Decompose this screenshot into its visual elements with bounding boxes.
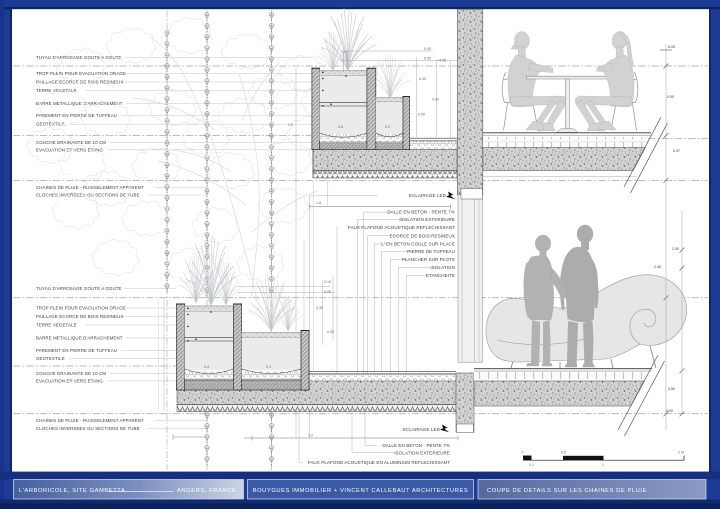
svg-text:0.6: 0.6: [338, 125, 343, 129]
svg-text:0.05: 0.05: [424, 47, 431, 51]
svg-text:0.45: 0.45: [327, 330, 334, 334]
svg-text:3.2: 3.2: [308, 434, 313, 438]
svg-text:ISOLATION: ISOLATION: [430, 265, 455, 270]
svg-text:ETANCHEITE: ETANCHEITE: [426, 273, 455, 278]
svg-text:0: 0: [522, 451, 524, 455]
svg-text:L'ARBORICOLE, SITE GAMBETTA: L'ARBORICOLE, SITE GAMBETTA: [19, 488, 125, 494]
svg-text:0.60: 0.60: [432, 98, 439, 102]
svg-text:GEOTEXTILE: GEOTEXTILE: [36, 356, 65, 361]
svg-text:6.30: 6.30: [419, 77, 426, 81]
svg-text:2.50: 2.50: [672, 247, 679, 251]
svg-text:0.50: 0.50: [418, 113, 425, 117]
svg-text:TUYAU D'ARROSAGE GOUTE A GOUTE: TUYAU D'ARROSAGE GOUTE A GOUTE: [36, 286, 122, 291]
svg-text:1.2: 1.2: [288, 123, 293, 127]
svg-text:TUYAU D'ARROSAGE GOUTE A GOUTE: TUYAU D'ARROSAGE GOUTE A GOUTE: [36, 55, 122, 60]
svg-text:ECLAIRAGE LED: ECLAIRAGE LED: [409, 193, 447, 198]
svg-text:PAILLAGE ECORCE DE BOIS RESINE: PAILLAGE ECORCE DE BOIS RESINEUX: [36, 314, 123, 319]
svg-text:EVACUATION EP VERS ETANG: EVACUATION EP VERS ETANG: [36, 147, 103, 152]
svg-text:PAREMENT EN PIERRE DE TUFFEAU: PAREMENT EN PIERRE DE TUFFEAU: [36, 113, 117, 118]
svg-text:TROP PLEIN POUR EVACUATION ORA: TROP PLEIN POUR EVACUATION ORAGE: [36, 306, 126, 311]
svg-text:0.5: 0.5: [561, 451, 566, 455]
svg-text:DALLE EN BETON - PENTE 7%: DALLE EN BETON - PENTE 7%: [387, 210, 455, 215]
svg-text:TROP PLEIN POUR EVACUATION ORA: TROP PLEIN POUR EVACUATION ORAGE: [36, 71, 126, 76]
svg-text:+4.95: +4.95: [437, 59, 446, 63]
svg-text:0.3: 0.3: [385, 125, 390, 129]
svg-text:L' EN BETON COULE SUR PLACE: L' EN BETON COULE SUR PLACE: [381, 241, 455, 246]
svg-text:BARRE METALLIQUE D'ARRACHEMENT: BARRE METALLIQUE D'ARRACHEMENT: [36, 336, 123, 341]
svg-text:0.05: 0.05: [424, 56, 431, 60]
svg-text:2 M: 2 M: [678, 451, 684, 455]
svg-text:0.1: 0.1: [529, 463, 534, 467]
svg-text:PIERRE DE TUFFEAU: PIERRE DE TUFFEAU: [407, 249, 455, 254]
svg-text:EVACUATION EP VERS ETANG: EVACUATION EP VERS ETANG: [36, 378, 103, 383]
svg-text:TERRE VEGETALE: TERRE VEGETALE: [36, 323, 77, 328]
svg-text:1: 1: [602, 463, 604, 467]
svg-text:ANGERS, FRANCE: ANGERS, FRANCE: [177, 488, 236, 494]
svg-text:ISOLATION EXTERIEURE: ISOLATION EXTERIEURE: [394, 450, 450, 455]
svg-text:0.30: 0.30: [316, 306, 323, 310]
svg-text:ISOLATION EXTERIEURE: ISOLATION EXTERIEURE: [399, 217, 455, 222]
svg-text:COUPE DE DETAILS SUR LES CHAIN: COUPE DE DETAILS SUR LES CHAINES DE PLUI…: [487, 488, 647, 494]
svg-text:0.4: 0.4: [204, 365, 209, 369]
svg-text:DALLE EN BETON - PENTE 7%: DALLE EN BETON - PENTE 7%: [382, 443, 450, 448]
svg-text:PAILLAGE ECORCE DE BOIS RESINE: PAILLAGE ECORCE DE BOIS RESINEUX: [36, 80, 123, 85]
svg-text:0.50: 0.50: [668, 387, 675, 391]
svg-text:1.8: 1.8: [316, 201, 321, 205]
svg-text:ECORCE DE BOIS RESINEUX: ECORCE DE BOIS RESINEUX: [390, 233, 455, 238]
svg-text:PAREMENT EN PIERRE DE TUFFEAU: PAREMENT EN PIERRE DE TUFFEAU: [36, 348, 117, 353]
svg-text:PLANCHER SUR PLOTS: PLANCHER SUR PLOTS: [402, 257, 455, 262]
svg-text:0.47: 0.47: [673, 149, 680, 153]
svg-text:5.00: 5.00: [668, 45, 675, 49]
svg-text:BOUYGUES IMMOBILIER + VINCENT: BOUYGUES IMMOBILIER + VINCENT CALLEBAUT …: [253, 488, 469, 494]
svg-text:CHAINES DE PLUIE - RUISSELEMEN: CHAINES DE PLUIE - RUISSELEMENT APPARENT: [36, 418, 144, 423]
svg-text:0.10: 0.10: [324, 280, 331, 284]
svg-text:0.3: 0.3: [266, 365, 271, 369]
svg-text:0.00: 0.00: [666, 409, 673, 413]
svg-text:0.05: 0.05: [667, 95, 674, 99]
svg-text:0.05: 0.05: [324, 290, 331, 294]
svg-text:COUCHE DRAINANTE DE 10 CM: COUCHE DRAINANTE DE 10 CM: [36, 371, 106, 376]
svg-text:2.45: 2.45: [654, 265, 661, 269]
svg-text:CLOCHES INVERSEES OU SECTIONS: CLOCHES INVERSEES OU SECTIONS DE TUBE: [36, 426, 140, 431]
svg-text:FAUX PLAFOND ACOUSTIQUE EN ALU: FAUX PLAFOND ACOUSTIQUE EN ALUMINIUM REF…: [308, 460, 450, 465]
svg-text:ECLAIRAGE LED: ECLAIRAGE LED: [403, 427, 441, 432]
